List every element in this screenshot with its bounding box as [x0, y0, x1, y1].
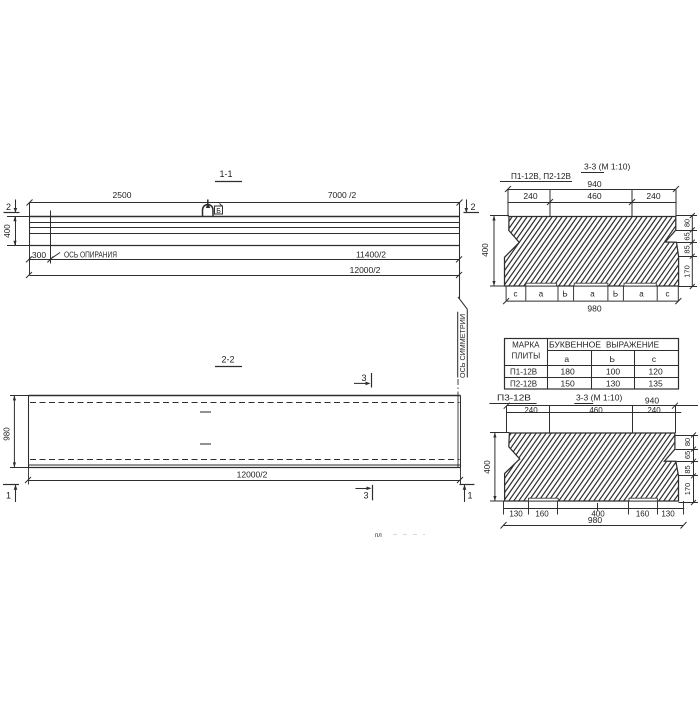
svg-text:180: 180 [561, 367, 575, 377]
svg-text:БУКВЕННОЕ: БУКВЕННОЕ [549, 341, 601, 350]
svg-text:3: 3 [363, 491, 368, 501]
svg-text:с: с [514, 290, 518, 299]
svg-text:ОСЬ ОПИРАНИЯ: ОСЬ ОПИРАНИЯ [64, 251, 117, 260]
svg-text:940: 940 [587, 179, 601, 189]
svg-text:240: 240 [646, 191, 660, 201]
svg-text:460: 460 [589, 406, 603, 415]
svg-text:а: а [639, 290, 644, 299]
svg-text:980: 980 [587, 304, 601, 314]
svg-text:130: 130 [606, 378, 620, 388]
svg-text:Ь: Ь [609, 354, 615, 364]
svg-text:65: 65 [683, 232, 692, 240]
svg-text:85: 85 [683, 245, 692, 253]
svg-text:а: а [539, 290, 544, 299]
svg-text:130: 130 [509, 510, 523, 519]
svg-text:2: 2 [6, 202, 11, 212]
svg-text:а: а [564, 354, 569, 364]
svg-text:100: 100 [606, 367, 620, 377]
svg-text:80: 80 [683, 438, 692, 446]
svg-text:ВЫРАЖЕНИЕ: ВЫРАЖЕНИЕ [606, 341, 659, 350]
svg-text:2-2: 2-2 [221, 355, 234, 365]
svg-text:1: 1 [6, 491, 11, 501]
svg-text:3-3 (М 1:10): 3-3 (М 1:10) [576, 393, 622, 403]
svg-text:80: 80 [683, 219, 692, 227]
svg-text:12000/2: 12000/2 [350, 265, 381, 275]
svg-text:П1-12В: П1-12В [510, 368, 537, 377]
svg-text:ОСЬ СИММЕТРИИ: ОСЬ СИММЕТРИИ [460, 314, 467, 378]
svg-text:1-1: 1-1 [219, 169, 232, 179]
svg-text:65: 65 [683, 451, 692, 459]
svg-text:135: 135 [649, 378, 663, 388]
svg-text:Ь: Ь [562, 290, 567, 299]
svg-text:400: 400 [483, 460, 492, 474]
svg-text:1: 1 [467, 491, 472, 501]
svg-text:460: 460 [587, 191, 601, 201]
svg-text:П3-12В: П3-12В [497, 393, 531, 403]
svg-text:120: 120 [649, 367, 663, 377]
svg-text:3: 3 [361, 373, 366, 383]
svg-text:940: 940 [645, 396, 659, 406]
svg-text:2500: 2500 [113, 190, 132, 200]
svg-text:130: 130 [661, 510, 675, 519]
svg-text:240: 240 [647, 406, 661, 415]
svg-text:400: 400 [3, 224, 12, 238]
svg-text:150: 150 [561, 378, 575, 388]
svg-text:11400/2: 11400/2 [356, 250, 386, 260]
svg-text:Б: Б [216, 208, 221, 215]
svg-text:980: 980 [3, 427, 12, 441]
svg-text:ПЛИТЫ: ПЛИТЫ [511, 352, 540, 361]
svg-text:240: 240 [523, 191, 537, 201]
svg-text:400: 400 [481, 243, 490, 257]
svg-text:85: 85 [683, 465, 692, 473]
svg-text:с: с [666, 290, 670, 299]
svg-text:пл: пл [375, 533, 382, 539]
svg-text:170: 170 [683, 265, 692, 278]
svg-text:2: 2 [470, 202, 475, 212]
svg-text:300: 300 [32, 250, 46, 260]
svg-text:12000/2: 12000/2 [237, 470, 268, 480]
svg-text:Ь: Ь [613, 290, 618, 299]
svg-text:МАРКА: МАРКА [512, 341, 540, 350]
svg-text:а: а [590, 290, 595, 299]
svg-text:980: 980 [588, 515, 602, 525]
svg-text:170: 170 [683, 483, 692, 496]
svg-text:240: 240 [524, 406, 538, 415]
svg-text:П1-12В, П2-12В: П1-12В, П2-12В [511, 171, 571, 181]
svg-text:160: 160 [535, 510, 549, 519]
svg-text:160: 160 [636, 510, 650, 519]
svg-text:7000 /2: 7000 /2 [328, 190, 357, 200]
svg-text:3-3 (М 1:10): 3-3 (М 1:10) [584, 162, 630, 172]
svg-text:П2-12В: П2-12В [510, 379, 537, 388]
